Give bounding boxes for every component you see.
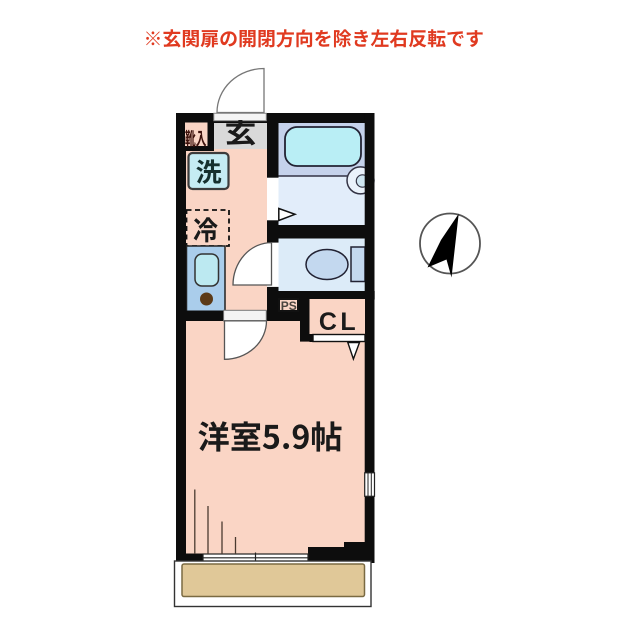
svg-text:CL: CL — [319, 308, 359, 336]
svg-text:PS: PS — [281, 299, 297, 313]
